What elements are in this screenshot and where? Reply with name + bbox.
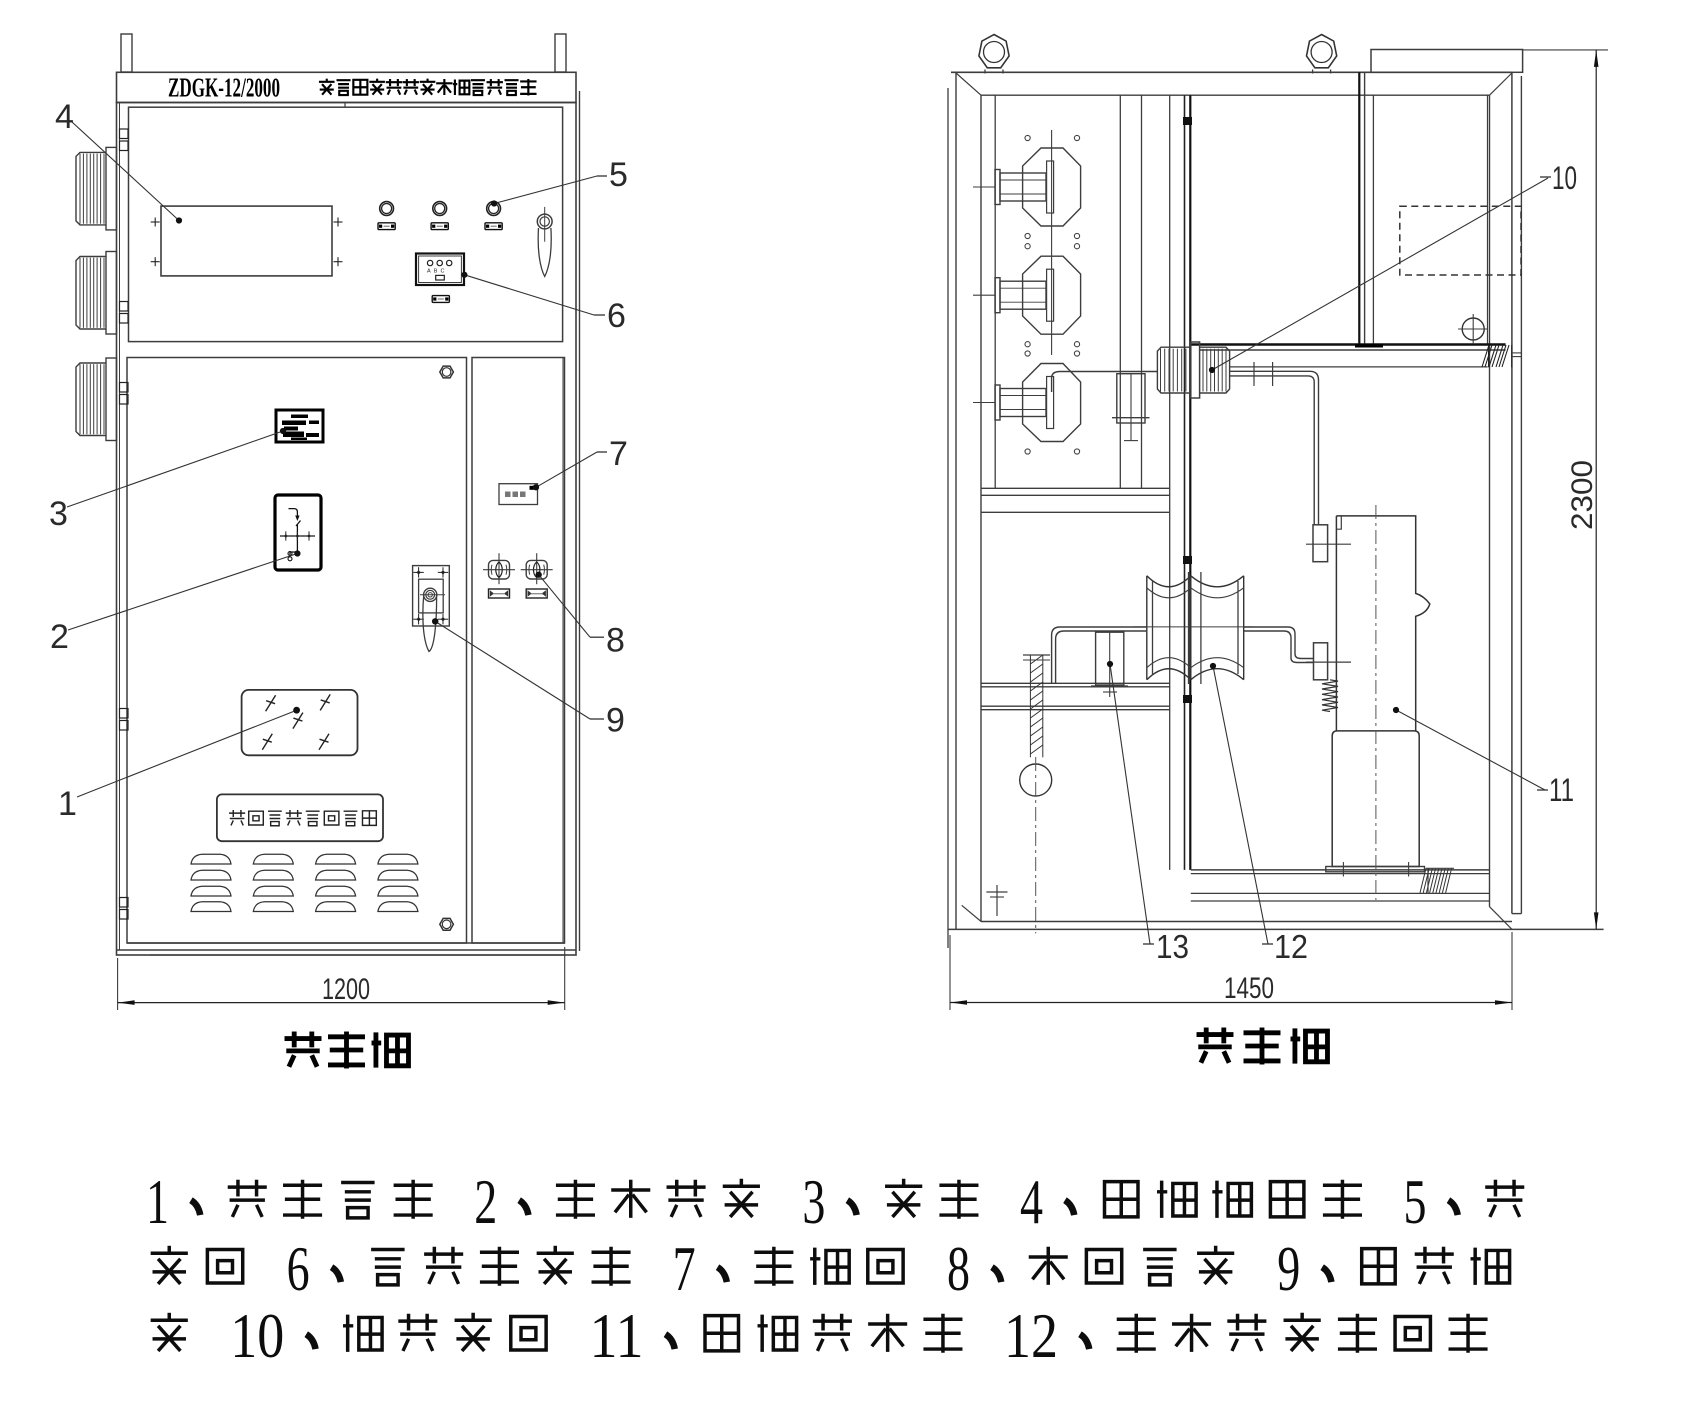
svg-text:8: 8 bbox=[947, 1233, 970, 1304]
svg-text:4: 4 bbox=[1020, 1166, 1043, 1237]
svg-text:7: 7 bbox=[609, 435, 628, 473]
svg-text:12: 12 bbox=[1004, 1300, 1058, 1371]
svg-text:1200: 1200 bbox=[322, 973, 370, 1006]
svg-text:10: 10 bbox=[1552, 160, 1577, 196]
svg-text:2: 2 bbox=[50, 618, 69, 656]
svg-text:3: 3 bbox=[802, 1166, 825, 1237]
svg-text:3: 3 bbox=[49, 495, 68, 533]
svg-text:2: 2 bbox=[474, 1166, 497, 1237]
svg-text:2300: 2300 bbox=[1566, 460, 1599, 530]
svg-text:6: 6 bbox=[607, 297, 626, 335]
svg-text:13: 13 bbox=[1156, 928, 1189, 965]
svg-text:12: 12 bbox=[1274, 928, 1308, 965]
svg-text:1450: 1450 bbox=[1224, 972, 1274, 1005]
svg-text:4: 4 bbox=[55, 98, 74, 136]
svg-text:5: 5 bbox=[609, 156, 628, 194]
svg-text:ZDGK-12/2000: ZDGK-12/2000 bbox=[168, 73, 280, 103]
svg-text:10: 10 bbox=[230, 1300, 284, 1371]
svg-text:11: 11 bbox=[590, 1300, 644, 1371]
svg-text:5: 5 bbox=[1404, 1166, 1427, 1237]
svg-text:9: 9 bbox=[1277, 1233, 1300, 1304]
svg-text:8: 8 bbox=[606, 622, 625, 660]
svg-text:A B C: A B C bbox=[427, 268, 444, 274]
svg-text:6: 6 bbox=[287, 1233, 310, 1304]
svg-text:9: 9 bbox=[606, 702, 625, 740]
svg-text:11: 11 bbox=[1549, 772, 1574, 808]
svg-text:1: 1 bbox=[146, 1166, 169, 1237]
svg-text:7: 7 bbox=[673, 1233, 696, 1304]
svg-text:1: 1 bbox=[58, 785, 77, 823]
